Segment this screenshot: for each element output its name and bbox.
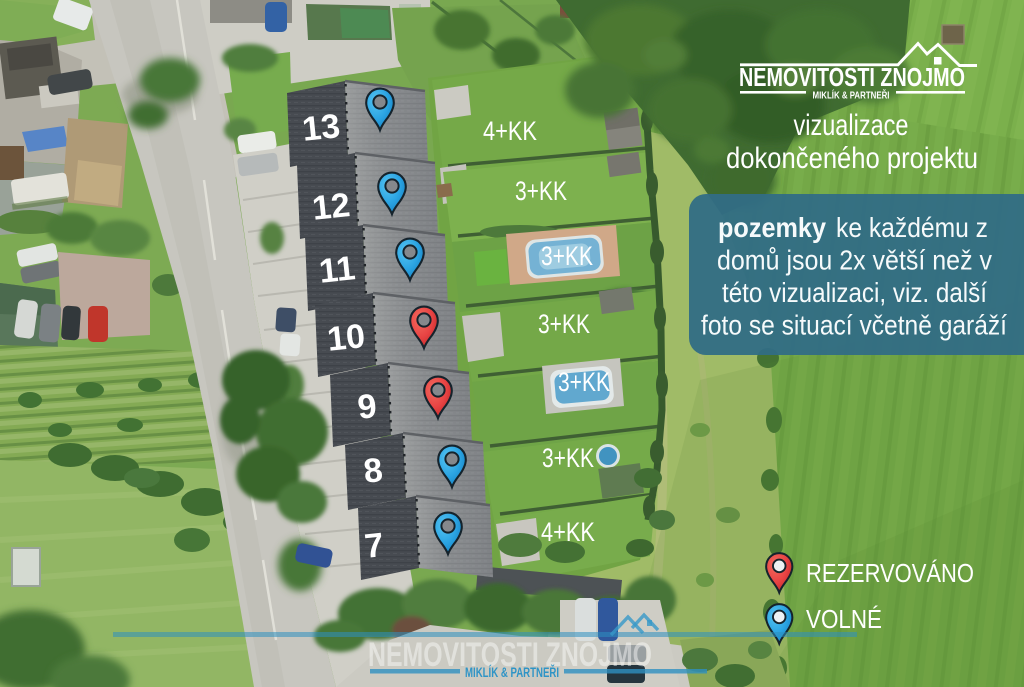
svg-text:11: 11 <box>317 249 357 291</box>
svg-text:3+KK: 3+KK <box>541 241 593 271</box>
svg-text:3+KK: 3+KK <box>538 309 590 339</box>
svg-text:MIKLÍK & PARTNEŘI: MIKLÍK & PARTNEŘI <box>465 665 559 680</box>
svg-text:NEMOVITOSTI ZNOJMO: NEMOVITOSTI ZNOJMO <box>739 62 965 92</box>
svg-text:ke každému z: ke každému z <box>836 212 988 243</box>
svg-text:10: 10 <box>325 317 367 359</box>
svg-text:3+KK: 3+KK <box>542 443 594 473</box>
svg-text:pozemky: pozemky <box>718 212 826 243</box>
svg-text:8: 8 <box>362 451 385 491</box>
svg-text:12: 12 <box>310 186 352 228</box>
svg-text:vizualizace: vizualizace <box>794 109 909 142</box>
svg-text:MIKLÍK & PARTNEŘI: MIKLÍK & PARTNEŘI <box>813 89 890 102</box>
svg-text:3+KK: 3+KK <box>558 367 610 397</box>
svg-text:7: 7 <box>363 526 386 566</box>
svg-text:13: 13 <box>300 107 342 149</box>
svg-text:4+KK: 4+KK <box>483 116 537 146</box>
svg-text:foto se situací včetně garáží: foto se situací včetně garáží <box>701 310 1007 341</box>
svg-text:této vizualizaci, viz. další: této vizualizaci, viz. další <box>722 277 987 308</box>
svg-text:9: 9 <box>356 387 379 427</box>
svg-text:4+KK: 4+KK <box>541 517 595 547</box>
svg-text:dokončeného projektu: dokončeného projektu <box>726 142 978 175</box>
svg-text:3+KK: 3+KK <box>515 176 567 206</box>
svg-text:domů jsou 2x větší než v: domů jsou 2x větší než v <box>717 245 992 276</box>
svg-text:VOLNÉ: VOLNÉ <box>806 604 882 634</box>
svg-text:REZERVOVÁNO: REZERVOVÁNO <box>806 558 974 588</box>
